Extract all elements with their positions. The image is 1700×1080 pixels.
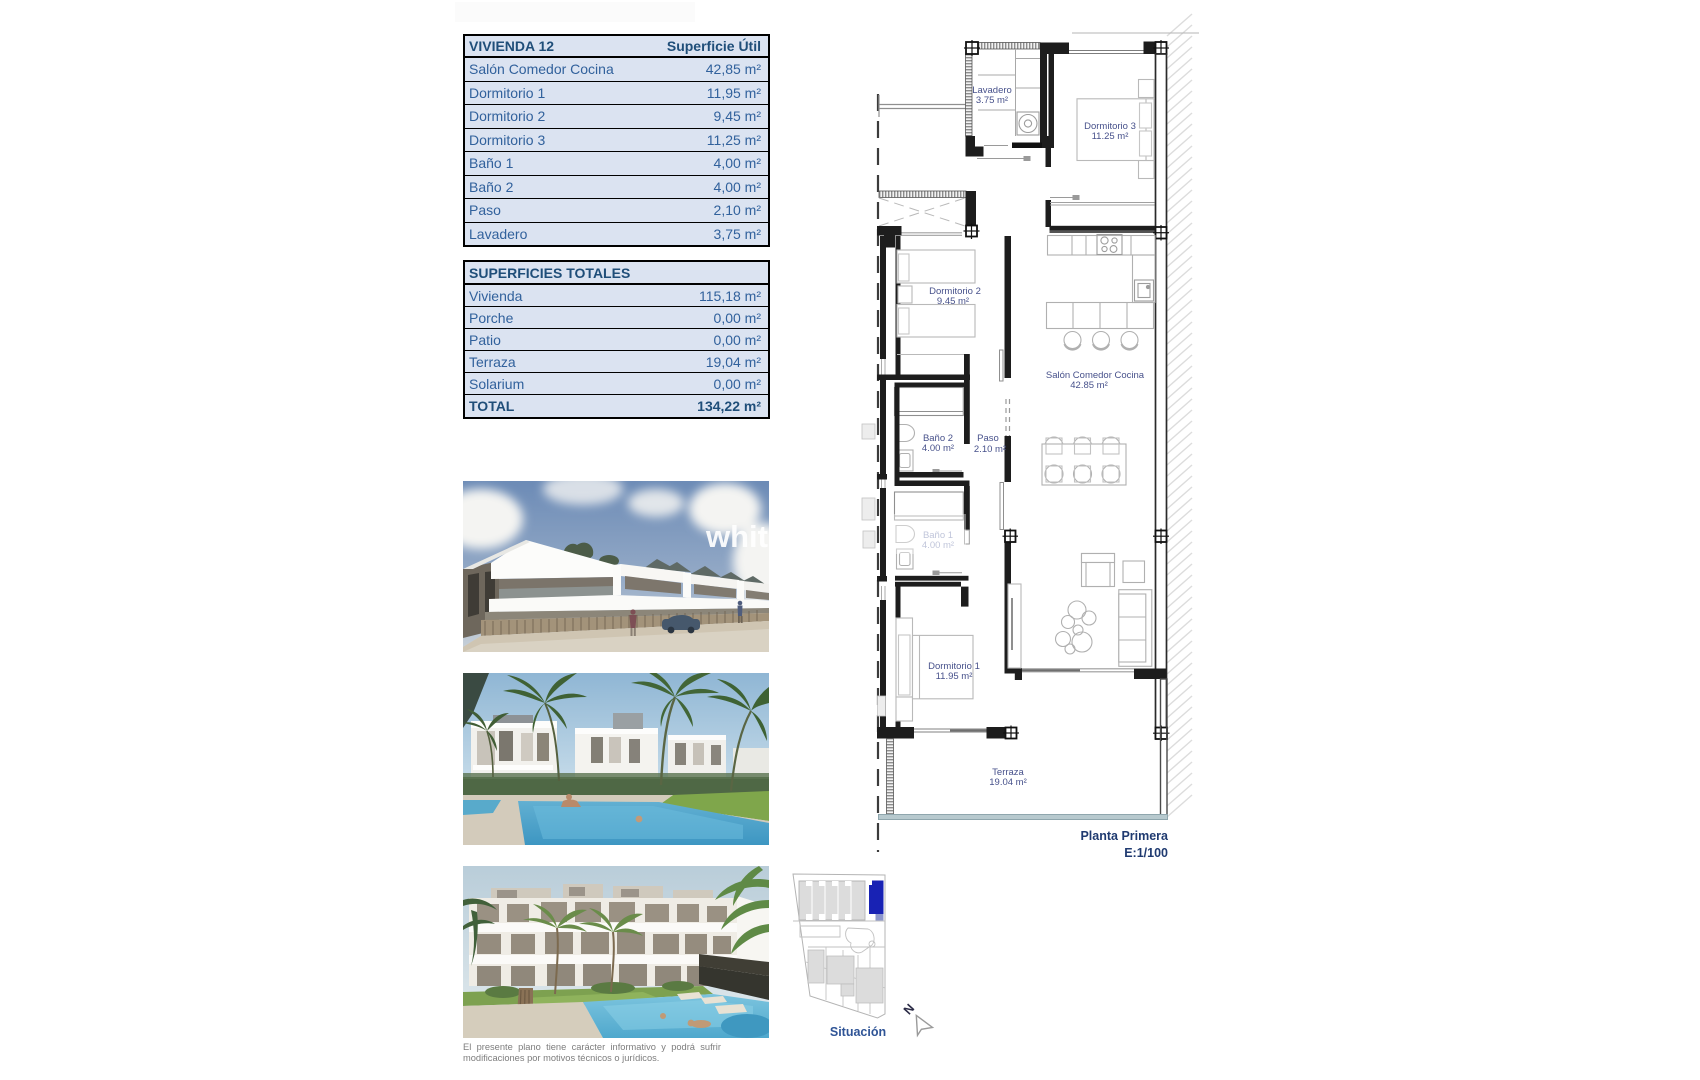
svg-text:9.45 m²: 9.45 m² — [937, 296, 969, 307]
svg-text:Planta Primera: Planta Primera — [1080, 829, 1169, 843]
svg-text:N: N — [901, 1001, 917, 1017]
svg-text:19.04 m²: 19.04 m² — [989, 777, 1027, 788]
svg-text:E:1/100: E:1/100 — [1124, 846, 1168, 860]
svg-text:Paso: Paso — [977, 433, 999, 444]
svg-text:11.25 m²: 11.25 m² — [1092, 131, 1129, 142]
svg-text:11.95 m²: 11.95 m² — [936, 671, 973, 682]
svg-text:3.75 m²: 3.75 m² — [976, 95, 1008, 106]
svg-text:4.00 m²: 4.00 m² — [922, 443, 954, 454]
svg-text:42.85 m²: 42.85 m² — [1070, 380, 1108, 391]
svg-text:2.10 m²: 2.10 m² — [974, 444, 1006, 455]
svg-text:Situación: Situación — [830, 1025, 886, 1039]
